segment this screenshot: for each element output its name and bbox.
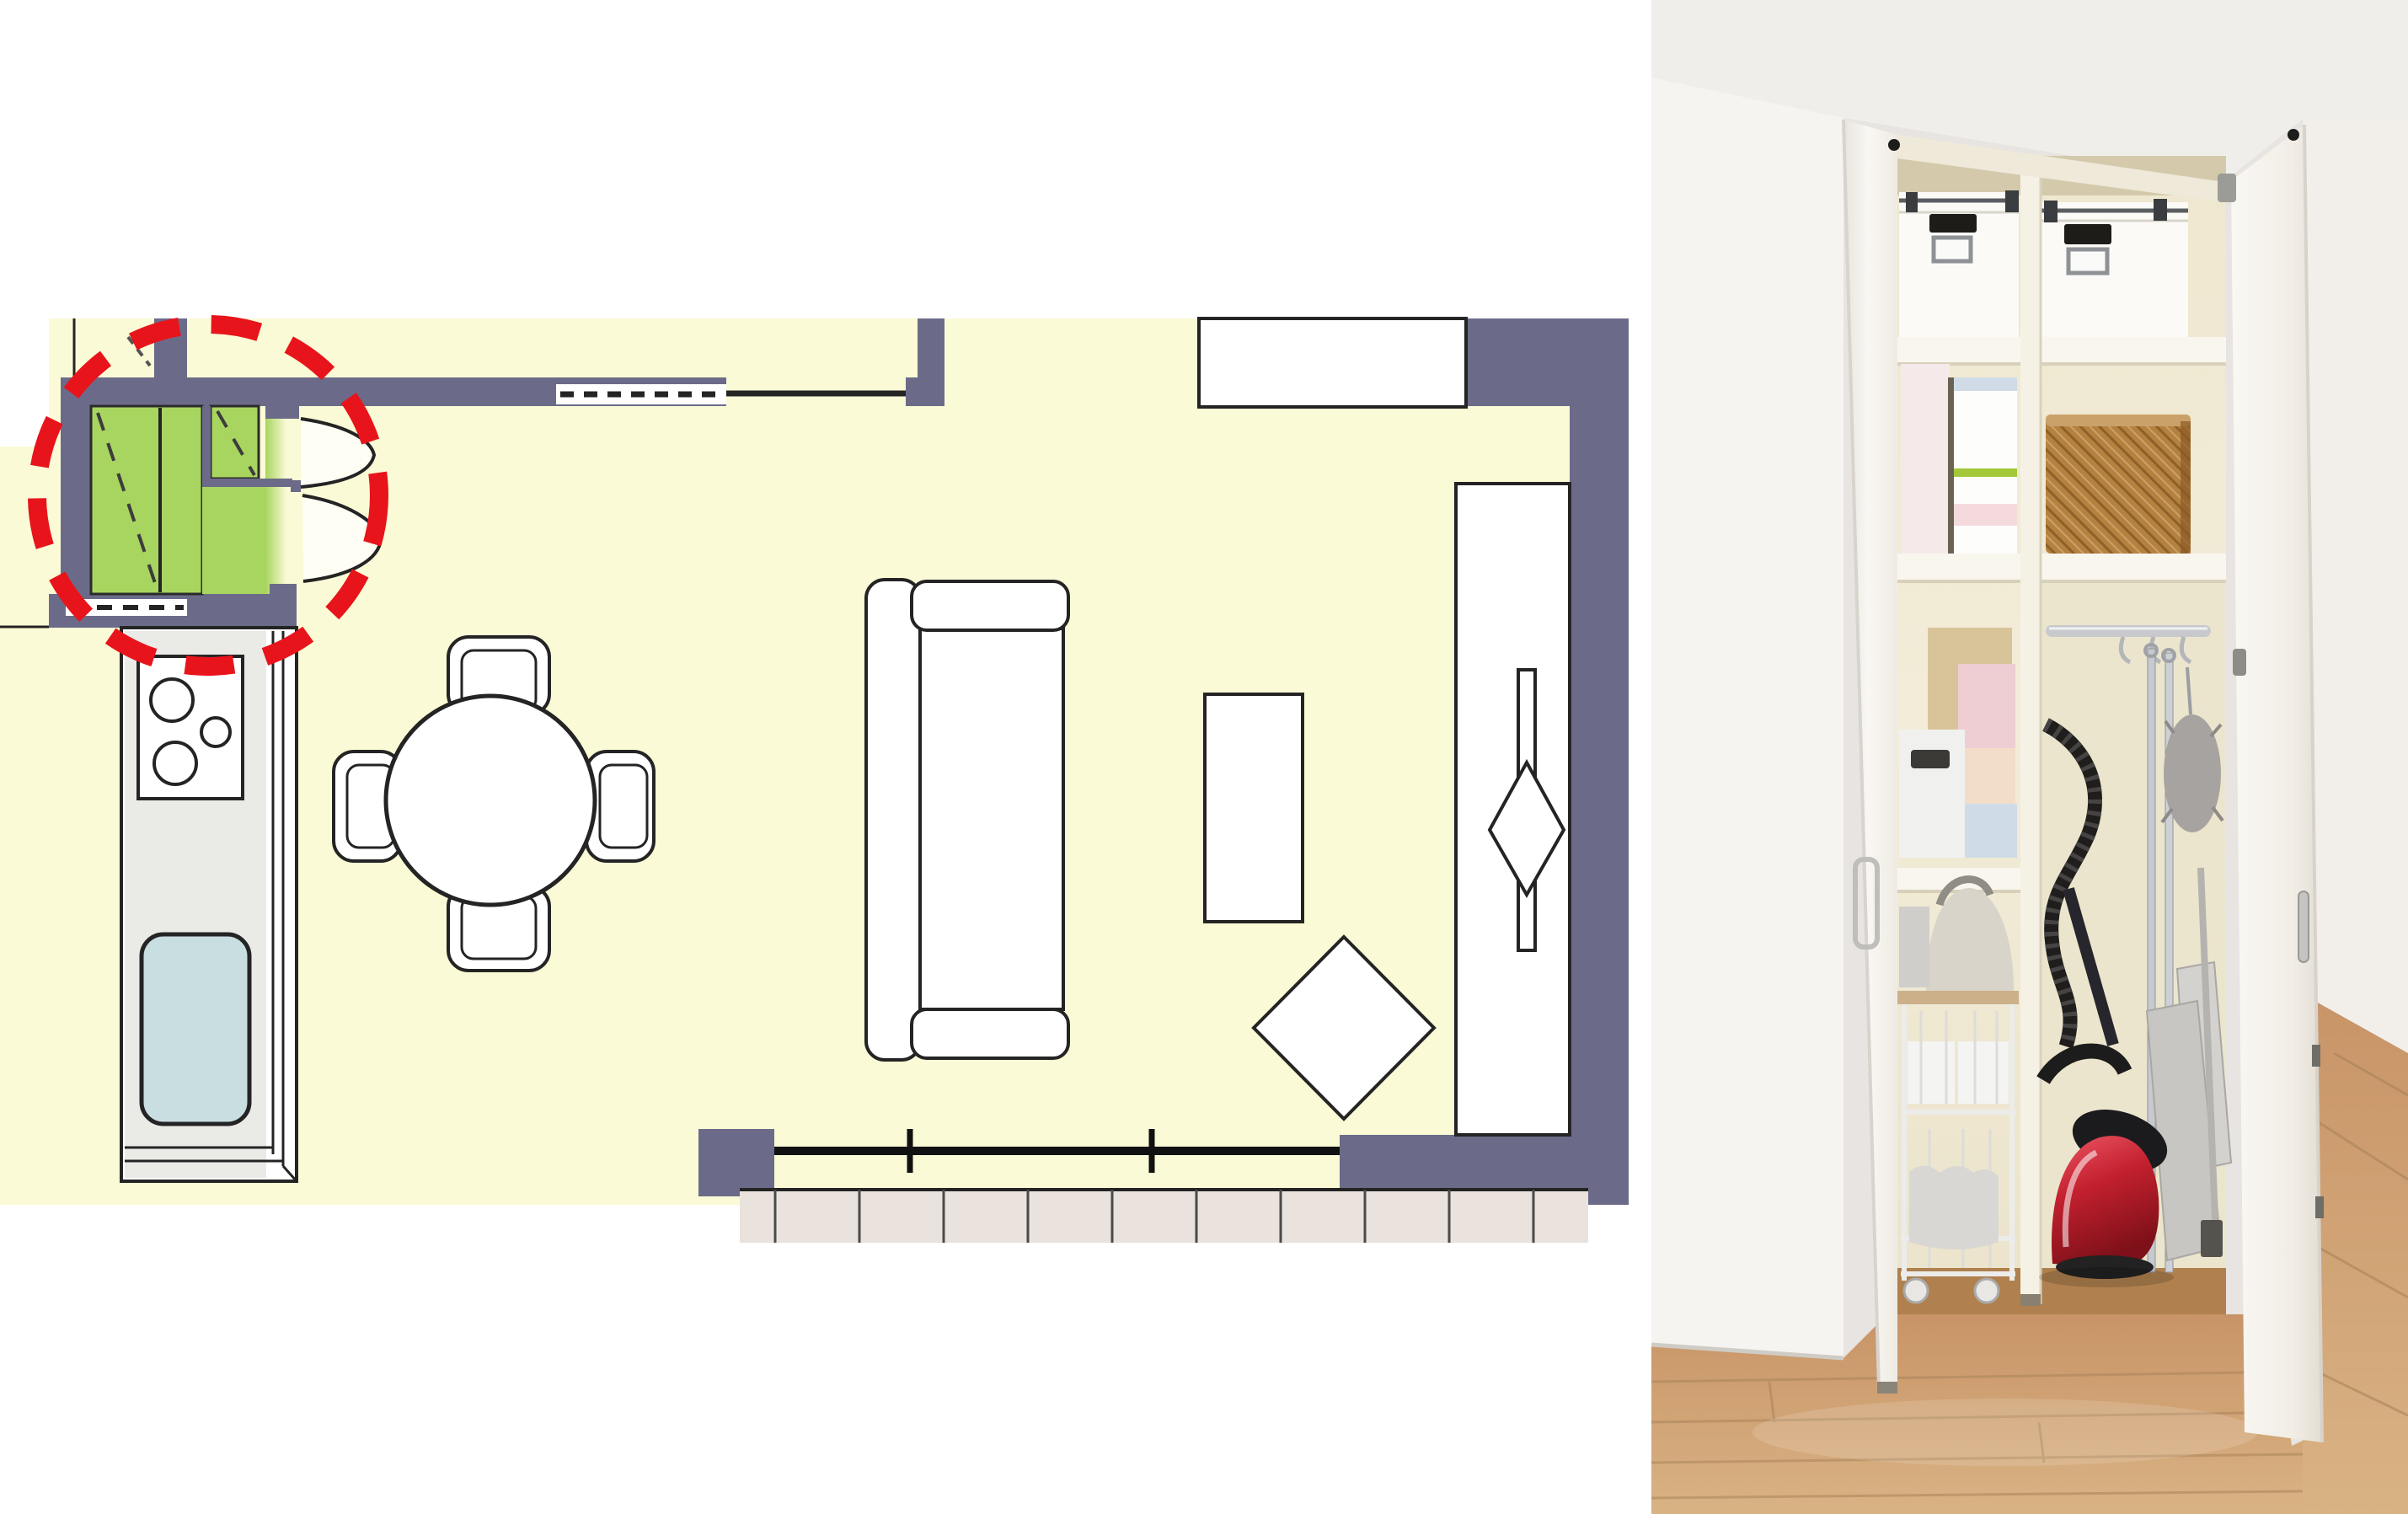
box-handle-slot [2064, 224, 2111, 244]
shelf-2 [1897, 554, 2226, 581]
wall-stub [918, 318, 944, 406]
cabinet-interior [1897, 156, 2231, 1314]
right-wall [2303, 118, 2408, 1053]
wall-bottom-left-block [698, 1129, 774, 1196]
storage-box-right [2041, 199, 2188, 339]
cabinet-photo [1651, 0, 2408, 1514]
basket-rim [2046, 415, 2191, 426]
box-clip-left [1906, 192, 1918, 212]
tissue-box-top-edge [1953, 377, 2017, 391]
sofa-back [866, 580, 920, 1060]
door-right-pivot [2288, 129, 2299, 141]
tissue-box-body [1953, 377, 2017, 554]
storage-box-left [1899, 190, 2019, 339]
door-right-hinge-1 [2312, 1045, 2320, 1067]
rattan-basket [2046, 415, 2191, 554]
box-clip-left [2044, 201, 2058, 222]
wall-stub-foot [906, 377, 918, 406]
cart-crumpled-bags [1909, 1165, 1999, 1249]
deck-strip [740, 1190, 1588, 1243]
small-gray-box [1899, 907, 1929, 987]
scene [0, 0, 2408, 1514]
peach-box [1958, 748, 2015, 804]
wall-left [61, 406, 91, 594]
tissue-box-gap-shadow [1948, 377, 1954, 554]
divider-foot [2020, 1294, 2041, 1306]
tissue-box-green-line [1953, 468, 2017, 477]
closet-jamb-bottom [270, 584, 297, 628]
tissue-box-pink [1901, 364, 1950, 554]
left-wall [1651, 78, 1843, 1358]
kitchen-counter [121, 628, 297, 1181]
basket-side-shadow [2181, 421, 2191, 554]
cart-top-shelf [1897, 991, 2019, 1004]
sofa [866, 580, 1068, 1060]
cart-box-1 [1908, 1041, 1955, 1104]
vacuum-shadow [2039, 1267, 2174, 1287]
closet-compartment-left [91, 406, 202, 594]
sofa-armrest-top [912, 581, 1068, 630]
sofa-armrest-bottom [912, 1009, 1068, 1058]
sofa-seat [920, 629, 1063, 1009]
caster-wheel-2 [1975, 1279, 1999, 1303]
closet-fade [265, 406, 286, 594]
closet-compartment-mid [202, 487, 265, 594]
cart-box-2 [1958, 1041, 2009, 1104]
box-label-holder [2068, 249, 2107, 273]
burner-3 [154, 742, 196, 784]
screenshot-canvas [0, 0, 2408, 1514]
caster-wheel-1 [1904, 1279, 1928, 1303]
closet-jamb-top [265, 406, 299, 419]
stove [138, 656, 243, 799]
box-handle-slot [1929, 214, 1977, 233]
interior-divider [2020, 156, 2041, 1304]
balcony-deck [740, 1190, 1588, 1243]
door-right-catch-mid [2233, 649, 2246, 676]
box-clip-right [2154, 199, 2167, 221]
burner-1 [151, 679, 193, 721]
rail-bar [2046, 625, 2211, 637]
sink [142, 934, 249, 1124]
door-left-foot [1877, 1382, 1897, 1394]
floor-sheen [1752, 1399, 2258, 1466]
tv-board [1456, 484, 1570, 1135]
door-right-hinge-2 [2315, 1196, 2324, 1218]
closet-pocket-wall-h [202, 479, 292, 487]
wall-outlet [2201, 1220, 2223, 1257]
door-right-handle [2298, 891, 2309, 962]
basket-body [2046, 415, 2191, 554]
burner-2 [201, 718, 230, 746]
white-bin-handle-slot [1911, 750, 1950, 768]
door-right-catch-top [2218, 174, 2236, 202]
coffee-table [1205, 694, 1303, 922]
closet-pocket-wall-v [202, 406, 211, 487]
box-clip-right [2005, 190, 2019, 212]
door-left-pivot [1888, 139, 1900, 151]
white-bin [1899, 730, 1965, 858]
floor-plan [0, 318, 1629, 1243]
box-label-holder [1934, 238, 1971, 261]
dining-table [386, 696, 595, 905]
tissue-box-pink-band [1953, 504, 2017, 526]
tissue-box-white [1948, 377, 2017, 554]
shelf-1 [1897, 337, 2226, 364]
pink-box [1958, 664, 2015, 748]
box-body [2041, 202, 2188, 339]
closet-jamb-mid [291, 480, 301, 492]
blue-box [1961, 804, 2017, 858]
wall-storage-cabinet [1199, 318, 1466, 407]
